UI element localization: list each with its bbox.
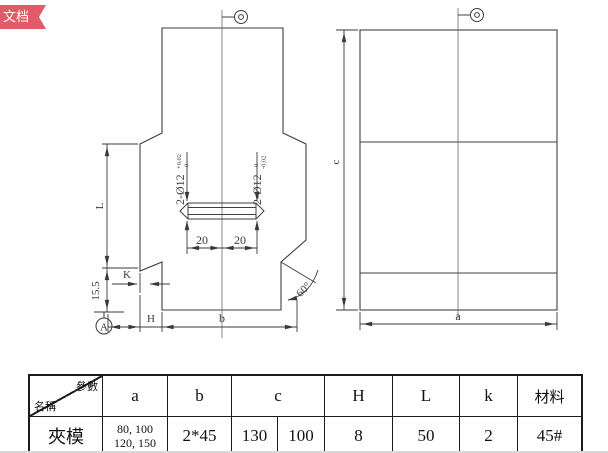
datum-A-label: A	[100, 322, 108, 334]
drawing-page: 文档 2-Ø12 +0.02	[0, 0, 608, 453]
dim-K	[112, 273, 170, 293]
dim-H-label: H	[147, 313, 155, 325]
hole-callout-left: 2-Ø12 +0.02 0	[173, 154, 191, 205]
value-b: 2*45	[168, 417, 232, 453]
row-name: 夾模	[29, 417, 103, 453]
dim-L	[102, 144, 138, 268]
dim-b-label: b	[219, 311, 225, 325]
value-a: 80, 100 120, 150	[103, 417, 168, 453]
dim-20-left-label: 20	[196, 233, 208, 247]
corner-name-label: 名稱	[34, 398, 56, 414]
dim-b-line	[108, 295, 297, 332]
side-datum-target-icon	[458, 9, 484, 22]
corner-cell: 參數 名稱	[29, 375, 103, 417]
table-header-row: 參數 名稱 a b c H L k 材料	[29, 375, 582, 417]
header-L: L	[393, 375, 460, 417]
dim-K-label: K	[123, 269, 131, 281]
hole-callout-left-sup: +0.02	[176, 154, 183, 169]
badge-label: 文档	[3, 9, 29, 24]
header-material: 材料	[518, 375, 583, 417]
value-a-line1: 80, 100	[103, 422, 167, 436]
value-material: 45#	[518, 417, 583, 453]
dim-c	[336, 30, 358, 310]
value-c2: 100	[278, 417, 325, 453]
front-view-outline	[140, 28, 306, 310]
table-data-row: 夾模 80, 100 120, 150 2*45 130 100 8 50 2 …	[29, 417, 582, 453]
dim-c-label: c	[330, 159, 342, 164]
dim-L-label: L	[94, 202, 106, 209]
side-view-outline	[360, 30, 557, 310]
header-b: b	[168, 375, 232, 417]
hole-callout-left-text: 2-Ø12	[173, 174, 187, 205]
value-L: 50	[393, 417, 460, 453]
parameter-table: 參數 名稱 a b c H L k 材料 夾模 80, 100 120, 150…	[28, 374, 583, 453]
front-datum-target-icon	[222, 11, 248, 24]
value-c1: 130	[232, 417, 278, 453]
header-k: k	[460, 375, 518, 417]
engineering-drawing: 2-Ø12 +0.02 0 2-Ø12 0 -0.02 20 20	[0, 0, 608, 372]
dim-a-label: a	[455, 309, 461, 323]
hole-callout-right: 2-Ø12 0 -0.02	[250, 155, 268, 205]
hole-callout-right-sub: -0.02	[261, 155, 268, 169]
header-c: c	[232, 375, 325, 417]
value-H: 8	[325, 417, 393, 453]
dim-155-label: 15.5	[90, 281, 102, 301]
value-a-line2: 120, 150	[103, 436, 167, 450]
value-k: 2	[460, 417, 518, 453]
header-a: a	[103, 375, 168, 417]
hole-callout-right-sup: 0	[253, 164, 260, 167]
corner-parameter-label: 參數	[76, 378, 98, 394]
header-H: H	[325, 375, 393, 417]
dim-20-right-label: 20	[234, 233, 246, 247]
